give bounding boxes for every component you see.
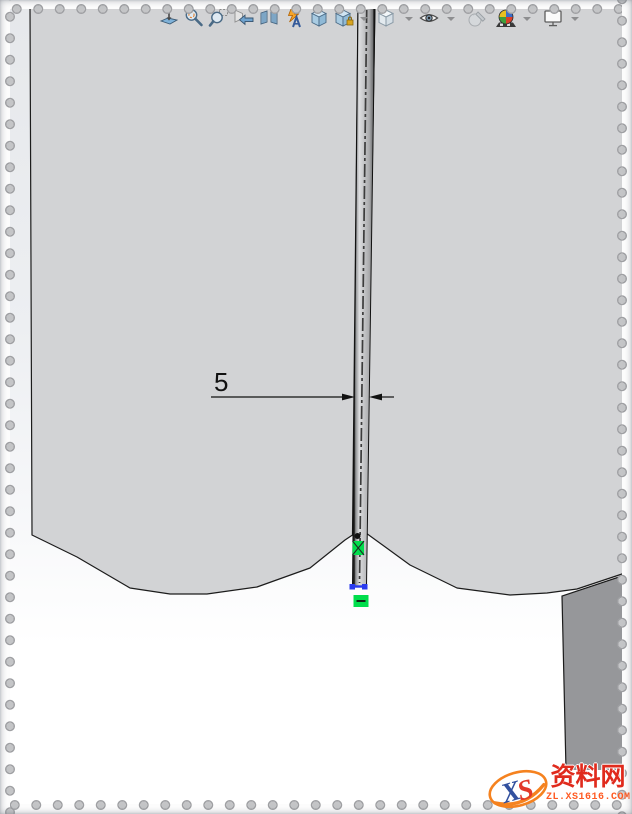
selected-face-highlight[interactable] [353,541,365,555]
view-settings-icon[interactable] [542,7,564,29]
watermark: X S 资料网 ZL.XS1616.COM [486,760,632,814]
watermark-logo: X S [486,766,550,812]
watermark-site-url: ZL.XS1616.COM [546,792,630,803]
display-style-icon[interactable] [375,7,397,29]
standard-views-icon[interactable] [333,7,355,29]
zoom-to-area-icon[interactable] [208,7,230,29]
edit-appearance-icon[interactable] [466,7,488,29]
display-style-dropdown-icon[interactable] [405,17,413,21]
view-orientation-icon[interactable] [308,7,330,29]
model-body-left[interactable] [30,4,358,594]
model-body-right[interactable] [366,4,628,595]
section-view-icon[interactable] [258,7,280,29]
heads-up-view-toolbar [158,5,582,31]
hide-show-items-icon[interactable] [418,7,440,29]
hide-show-annotations-icon[interactable] [283,7,305,29]
watermark-site-name: 资料网 [546,764,630,791]
model-viewport[interactable]: 5 [0,0,632,814]
sketch-endpoint-left[interactable] [350,584,356,590]
view-settings-dropdown-icon[interactable] [571,17,579,21]
standard-views-dropdown-icon[interactable] [360,17,368,21]
model-side-face[interactable] [562,574,628,770]
horizontal-relation-badge[interactable] [354,595,369,607]
vertex-dot[interactable] [355,533,361,539]
zoom-icon[interactable] [183,7,205,29]
previous-view-icon[interactable] [233,7,255,29]
dimension-value[interactable]: 5 [214,367,228,397]
apply-scene-icon[interactable] [495,7,517,29]
sketch-endpoint-right[interactable] [362,584,368,590]
hide-show-items-dropdown-icon[interactable] [447,17,455,21]
zoom-to-fit-icon[interactable] [158,7,180,29]
solidworks-viewport-screenshot: 5 [0,0,632,814]
apply-scene-dropdown-icon[interactable] [523,17,531,21]
